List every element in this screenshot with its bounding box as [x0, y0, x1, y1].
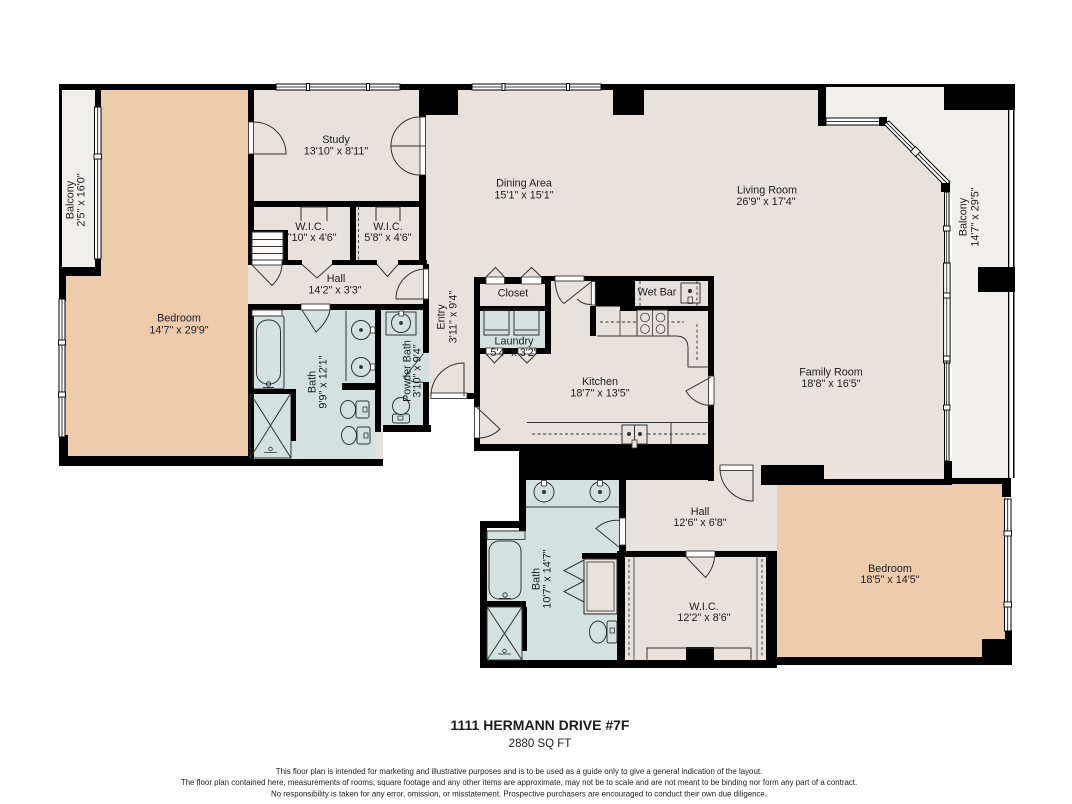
svg-text:Family Room: Family Room — [799, 367, 863, 379]
svg-text:W.I.C.: W.I.C. — [295, 221, 324, 233]
svg-text:Dining Area: Dining Area — [496, 178, 552, 190]
svg-text:14'7" x 29'9": 14'7" x 29'9" — [149, 325, 208, 337]
svg-text:12'2" x 8'6": 12'2" x 8'6" — [677, 612, 730, 624]
svg-text:Closet: Closet — [498, 288, 529, 300]
svg-text:Wet Bar: Wet Bar — [638, 287, 677, 299]
svg-text:Hall: Hall — [691, 506, 710, 518]
svg-text:Study: Study — [322, 134, 350, 146]
svg-text:Entry: Entry — [436, 304, 448, 330]
svg-text:14'7" x 29'5": 14'7" x 29'5" — [970, 187, 982, 246]
svg-text:18'5" x 14'5": 18'5" x 14'5" — [860, 574, 919, 586]
svg-text:W.I.C.: W.I.C. — [373, 221, 402, 233]
svg-text:26'9" x 17'4": 26'9" x 17'4" — [736, 196, 795, 208]
svg-text:Balcony: Balcony — [958, 197, 970, 236]
svg-text:7'10" x 4'6": 7'10" x 4'6" — [283, 232, 336, 244]
svg-text:15'1" x 15'1": 15'1" x 15'1" — [494, 190, 553, 202]
svg-text:18'8" x 16'5": 18'8" x 16'5" — [801, 378, 860, 390]
svg-text:Living Room: Living Room — [737, 185, 797, 197]
svg-text:This floor plan is intended fo: This floor plan is intended for marketin… — [276, 767, 762, 776]
svg-text:18'7" x 13'5": 18'7" x 13'5" — [570, 387, 629, 399]
svg-text:3'11" x 9'4": 3'11" x 9'4" — [448, 291, 460, 344]
svg-text:5'4" x 3'2": 5'4" x 3'2" — [490, 347, 537, 359]
svg-text:The floor plan contained here,: The floor plan contained here, measureme… — [181, 778, 857, 787]
svg-text:Kitchen: Kitchen — [582, 376, 618, 388]
svg-text:10'7" x 14'7": 10'7" x 14'7" — [542, 549, 554, 608]
svg-text:14'2" x 3'3": 14'2" x 3'3" — [308, 284, 361, 296]
svg-text:13'10" x 8'11": 13'10" x 8'11" — [304, 145, 369, 157]
svg-text:2880 SQ FT: 2880 SQ FT — [509, 738, 572, 750]
svg-text:2'5" x 16'0": 2'5" x 16'0" — [76, 173, 88, 226]
svg-text:1111 HERMANN DRIVE #7F: 1111 HERMANN DRIVE #7F — [451, 717, 630, 733]
svg-text:5'8" x 4'6": 5'8" x 4'6" — [364, 232, 411, 244]
svg-text:Hall: Hall — [327, 273, 346, 285]
svg-text:3'10" x 9'4": 3'10" x 9'4" — [412, 344, 424, 397]
svg-text:No responsibility is taken for: No responsibility is taken for any error… — [271, 789, 767, 798]
svg-text:12'6" x 6'8": 12'6" x 6'8" — [673, 517, 726, 529]
svg-text:9'9" x 12'1": 9'9" x 12'1" — [318, 355, 330, 408]
svg-text:Bedroom: Bedroom — [157, 313, 201, 325]
